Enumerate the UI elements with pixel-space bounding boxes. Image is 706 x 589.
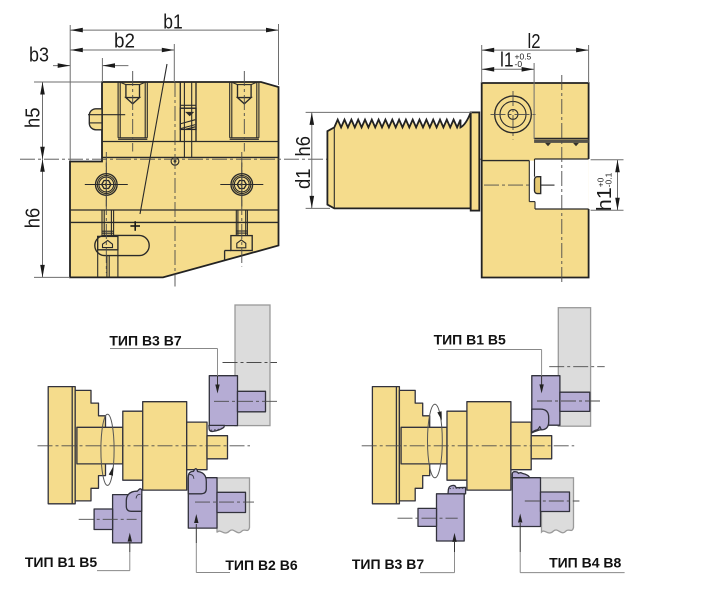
svg-text:b3: b3 bbox=[29, 44, 49, 66]
svg-text:-0.1: -0.1 bbox=[604, 172, 614, 187]
svg-text:ТИП В3 В7: ТИП В3 В7 bbox=[352, 556, 424, 572]
svg-text:l2: l2 bbox=[528, 31, 541, 53]
svg-text:l1: l1 bbox=[500, 50, 514, 72]
svg-text:h6: h6 bbox=[293, 136, 315, 157]
svg-text:b1: b1 bbox=[163, 12, 183, 34]
svg-text:h1: h1 bbox=[594, 187, 616, 211]
svg-text:ТИП В1 В5: ТИП В1 В5 bbox=[434, 332, 506, 348]
svg-text:ТИП В3 В7: ТИП В3 В7 bbox=[109, 333, 181, 349]
svg-text:-0: -0 bbox=[515, 59, 523, 69]
svg-text:ТИП В2 В6: ТИП В2 В6 bbox=[225, 557, 297, 573]
svg-text:h6: h6 bbox=[23, 208, 45, 229]
svg-text:ТИП В4 В8: ТИП В4 В8 bbox=[549, 554, 621, 570]
svg-text:b2: b2 bbox=[114, 30, 135, 52]
svg-text:d1: d1 bbox=[293, 169, 315, 190]
svg-text:ТИП В1 В5: ТИП В1 В5 bbox=[25, 554, 97, 570]
svg-text:h5: h5 bbox=[23, 108, 45, 129]
